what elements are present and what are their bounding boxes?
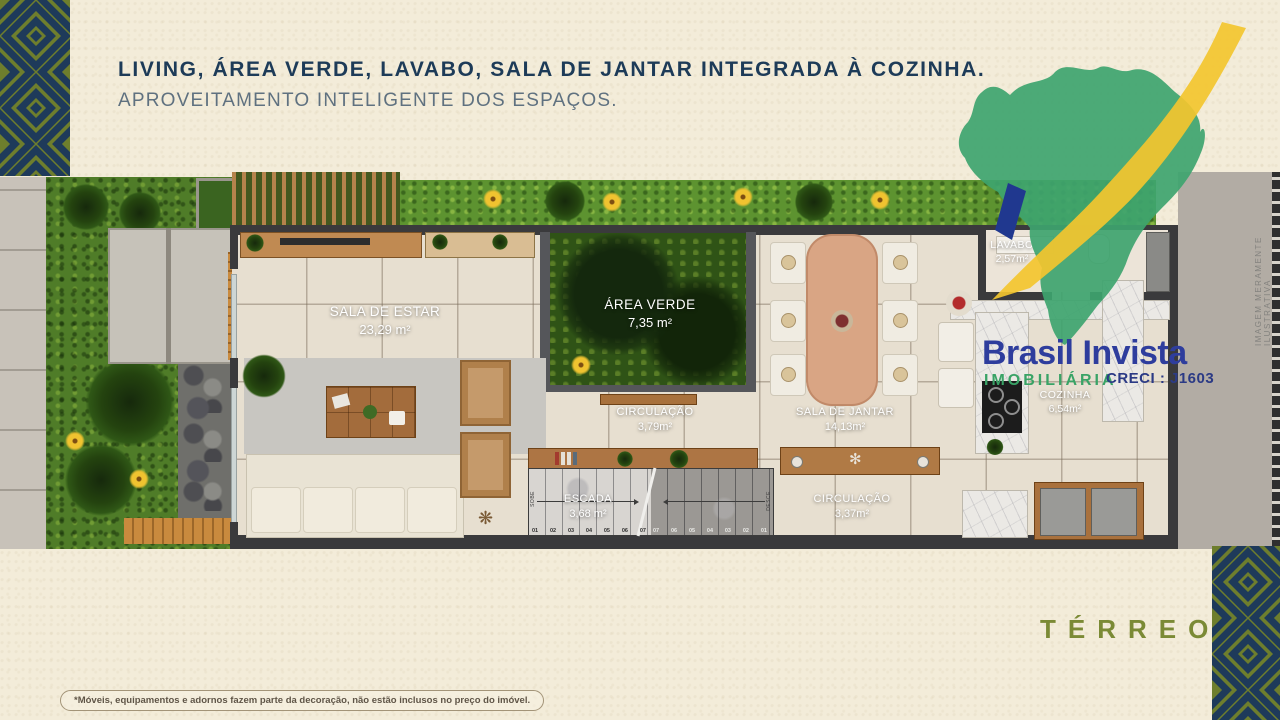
- stair-step-numbers-up: 01020304050607: [532, 528, 646, 534]
- shelf-plant: [617, 451, 633, 467]
- brand-name: Brasil Invista: [982, 334, 1187, 373]
- table-tray: [389, 411, 405, 425]
- wall-left-stub: [230, 225, 238, 269]
- counter-piece: [962, 490, 1028, 538]
- stairs-sobe-label: SOBE: [530, 491, 536, 507]
- garden-flower: [64, 430, 86, 452]
- area-verde-wall: [540, 384, 756, 392]
- stairs-down: [651, 469, 773, 535]
- room-label-sala-de-estar: SALA DE ESTAR 23,29 m²: [330, 303, 441, 339]
- corner-pattern-top-left: [0, 0, 70, 176]
- table-plant: [363, 405, 377, 419]
- fruit-bowl: [946, 290, 972, 316]
- brand-tagline: IMOBILIÁRIA: [984, 372, 1117, 390]
- dining-chair: [770, 300, 806, 342]
- kitchen-stool: [938, 368, 974, 408]
- dining-chair: [882, 242, 918, 284]
- page-title: LIVING, ÁREA VERDE, LAVABO, SALA DE JANT…: [118, 58, 985, 82]
- lavabo-wall: [978, 230, 986, 300]
- garden-bush: [64, 444, 138, 516]
- armchair: [460, 432, 511, 498]
- dining-chair: [882, 354, 918, 396]
- floorplan-marketing-page: LIVING, ÁREA VERDE, LAVABO, SALA DE JANT…: [0, 0, 1280, 720]
- sofa: [246, 454, 464, 538]
- hedge-flower: [480, 186, 506, 212]
- room-label-cozinha: COZINHA 6,54m²: [1040, 388, 1091, 416]
- dining-chair: [770, 354, 806, 396]
- hedge-flower: [730, 184, 756, 210]
- watermark-text: IMAGEM MERAMENTE ILUSTRATIVA: [1254, 196, 1272, 346]
- sideboard-decor: [280, 238, 370, 245]
- disclaimer-pill: *Móveis, equipamentos e adornos fazem pa…: [60, 690, 544, 711]
- dining-chair: [770, 242, 806, 284]
- garden-bench: [600, 394, 697, 405]
- wood-deck: [124, 518, 236, 544]
- laundry-counter: [1034, 482, 1144, 540]
- wall-left-stub: [230, 522, 238, 549]
- dining-console: ✻: [780, 447, 940, 475]
- decor-star: ✻: [849, 450, 862, 468]
- shelf-plant: [669, 450, 689, 468]
- sideboard: [240, 232, 422, 258]
- hedge-bush: [545, 180, 585, 222]
- washer: [1040, 488, 1086, 536]
- sideboard-plant: [246, 234, 264, 252]
- coffee-table: [326, 386, 416, 438]
- garden-flower: [128, 468, 150, 490]
- shelf-plant: [492, 234, 508, 250]
- room-label-sala-de-jantar: SALA DE JANTAR 14,13m²: [796, 405, 894, 435]
- garden-bush: [62, 184, 110, 230]
- corner-pattern-bottom-right: [1212, 546, 1280, 720]
- area-verde-flower: [566, 350, 596, 380]
- wall-left-stub: [230, 358, 238, 388]
- boundary-fence: [1272, 172, 1280, 549]
- area-verde-wall: [746, 232, 756, 392]
- stair-step-numbers-down: 07060504030201: [653, 528, 767, 534]
- kitchen-stool: [938, 322, 974, 362]
- floor-label: TÉRREO: [1040, 614, 1220, 645]
- green-roof-hedge: [400, 180, 1156, 230]
- glass-sliding-door: [232, 275, 236, 537]
- hedge-flower: [868, 188, 892, 212]
- room-label-lavabo: LAVABO 2,57m²: [990, 238, 1033, 266]
- hedge-flower: [600, 190, 624, 214]
- dining-table: [806, 234, 878, 406]
- room-label-area-verde: ÁREA VERDE 7,35 m²: [604, 296, 695, 332]
- centerpiece-bowl: [831, 310, 853, 332]
- creci-number: CRECI : J1603: [1106, 370, 1214, 387]
- bookshelf: [528, 448, 758, 470]
- page-subtitle: APROVEITAMENTO INTELIGENTE DOS ESPAÇOS.: [118, 90, 618, 112]
- sidewalk: [0, 177, 46, 549]
- room-label-circulacao-2: CIRCULAÇÃO 3,37m²: [813, 492, 890, 522]
- room-label-escada: ESCADA 3,68 m²: [564, 492, 612, 522]
- living-plant: [242, 354, 286, 398]
- decor-star: ❋: [478, 508, 493, 529]
- lavabo-wall: [978, 292, 1052, 300]
- stairs-desce-label: DESCE: [766, 491, 772, 511]
- toilet: [1088, 234, 1110, 264]
- table-book: [332, 393, 351, 409]
- armchair: [460, 360, 511, 426]
- driveway-joint: [166, 228, 171, 364]
- garden-tree: [84, 358, 176, 446]
- fridge: [1146, 232, 1170, 292]
- dryer: [1091, 488, 1137, 536]
- stairs-down-arrow: [667, 501, 765, 502]
- island-plant: [986, 439, 1004, 455]
- shelf-plant: [432, 234, 448, 250]
- room-label-circulacao-1: CIRCULAÇÃO 3,79m²: [616, 405, 693, 435]
- hedge-bush: [795, 182, 833, 222]
- dining-chair: [882, 300, 918, 342]
